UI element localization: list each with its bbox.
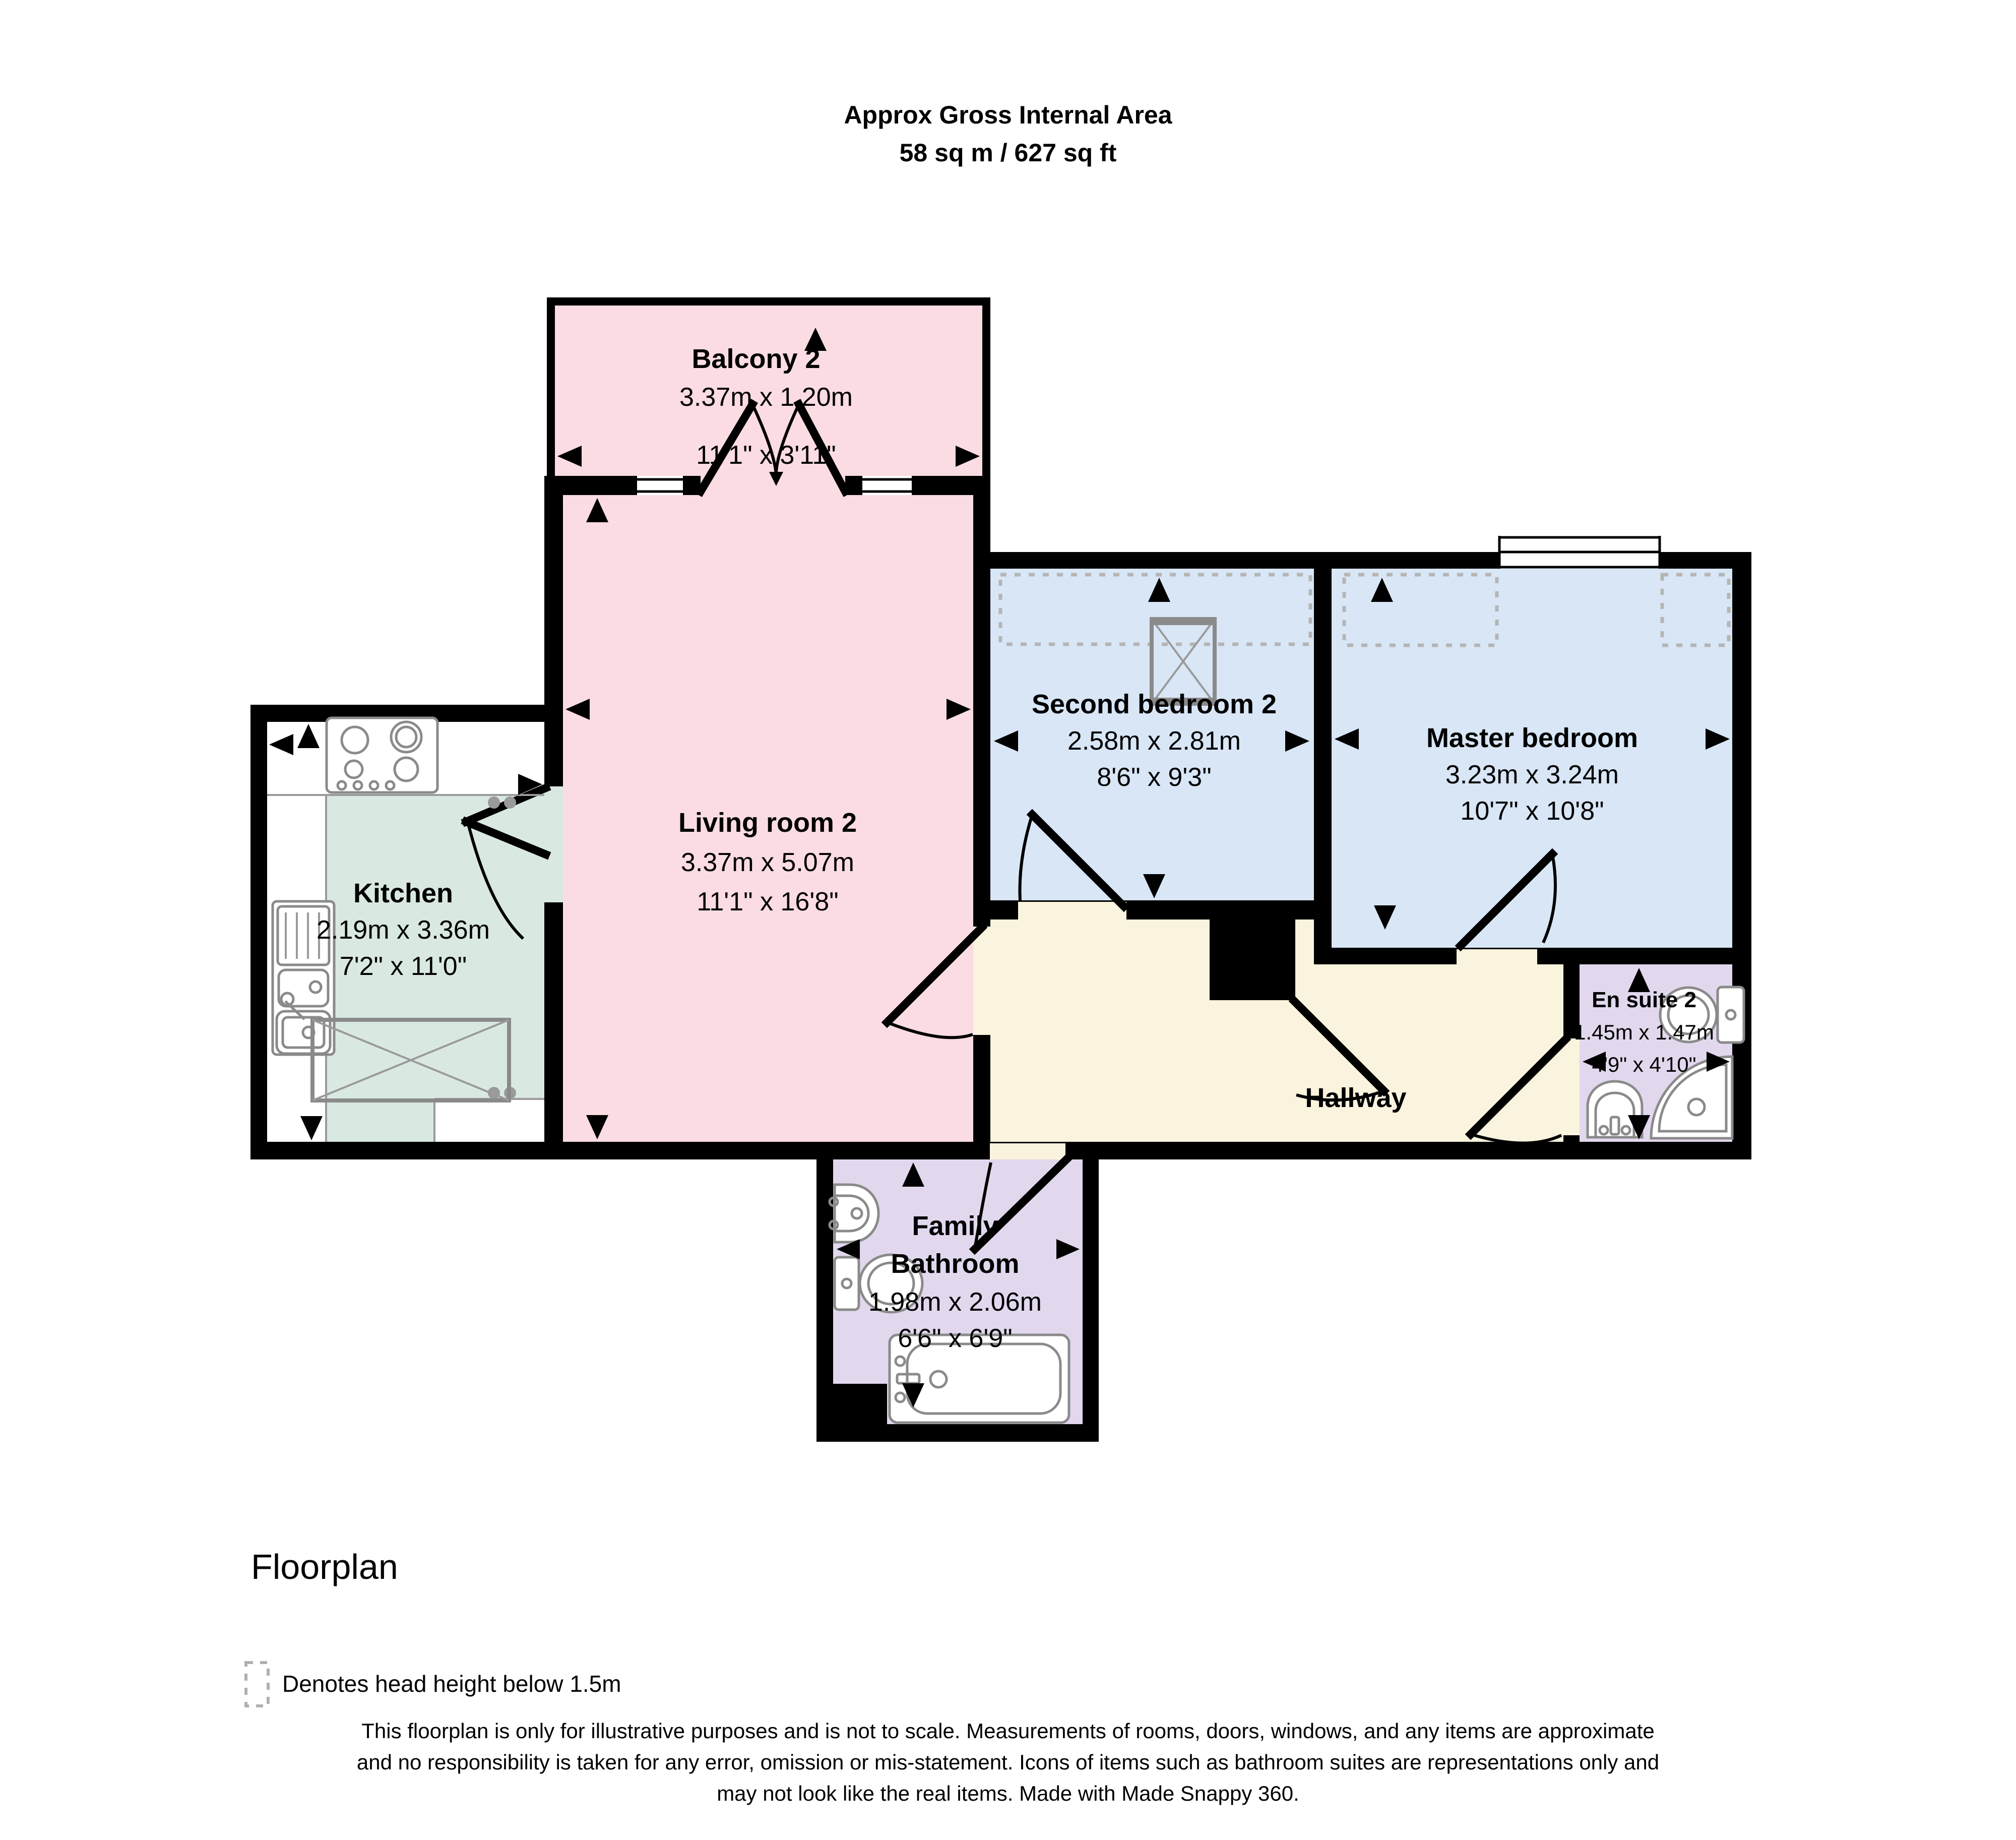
disclaimer-line-1: This floorplan is only for illustrative …: [361, 1719, 1655, 1743]
wall-joiner: [1314, 900, 1332, 964]
kitchen-door-opening: [544, 786, 563, 902]
legend-text: Denotes head height below 1.5m: [282, 1671, 621, 1697]
room-imperial: 10'7" x 10'8": [1460, 796, 1604, 826]
room-label-living: Living room 2 3.37m x 5.07m 11'1" x 16'8…: [678, 808, 857, 916]
room-name: Bathroom: [891, 1249, 1020, 1279]
wall-balcony-left: [547, 297, 555, 476]
header-title: Approx Gross Internal Area: [844, 101, 1172, 129]
room-metric: 1.98m x 2.06m: [868, 1287, 1042, 1317]
second-bedroom-door-opening: [1018, 902, 1126, 919]
room-imperial: 7'2" x 11'0": [340, 952, 467, 981]
wall-balcony-right: [982, 297, 990, 476]
toilet-cistern: [1718, 987, 1744, 1042]
room-metric: 2.58m x 2.81m: [1067, 726, 1241, 756]
room-name: Family: [912, 1211, 998, 1241]
wall-bathroom-notch: [816, 1384, 887, 1442]
header: Approx Gross Internal Area 58 sq m / 627…: [844, 101, 1172, 167]
door-stop-dot: [504, 796, 516, 809]
box-cap: [1152, 619, 1215, 625]
living-door-opening: [973, 927, 990, 1035]
room-name: Hallway: [1305, 1083, 1406, 1113]
floorplan-page: Approx Gross Internal Area 58 sq m / 627…: [0, 0, 2016, 1840]
floorplan-canvas: Approx Gross Internal Area 58 sq m / 627…: [0, 0, 2016, 1840]
room-name: En suite 2: [1592, 988, 1696, 1012]
master-bedroom-floor: [1332, 569, 1732, 948]
room-metric: 2.19m x 3.36m: [317, 915, 490, 945]
room-name: Balcony 2: [691, 344, 820, 374]
floorplan-caption: Floorplan: [251, 1547, 398, 1586]
room-metric: 3.37m x 5.07m: [681, 848, 854, 877]
room-name: Kitchen: [353, 878, 453, 908]
disclaimer-line-3: may not look like the real items. Made w…: [717, 1782, 1299, 1805]
room-imperial: 11'1" x 16'8": [697, 887, 838, 916]
en-suite-door-opening: [1563, 1038, 1580, 1135]
room-metric: 3.23m x 3.24m: [1445, 760, 1619, 789]
head-height-legend-icon: [246, 1663, 268, 1706]
header-area: 58 sq m / 627 sq ft: [900, 139, 1117, 167]
wall-living-right: [973, 476, 990, 1159]
wall-between-bedrooms: [1314, 569, 1332, 919]
room-imperial: 4'9" x 4'10": [1592, 1053, 1696, 1076]
wall-bathroom-right: [1083, 1159, 1099, 1442]
toilet-cistern: [835, 1257, 859, 1310]
disclaimer-line-2: and no responsibility is taken for any e…: [357, 1750, 1659, 1774]
room-name: Living room 2: [678, 808, 857, 838]
bathroom-door-opening: [990, 1143, 1065, 1159]
room-name: Second bedroom 2: [1032, 689, 1277, 719]
room-metric: 1.45m x 1.47m: [1574, 1020, 1714, 1044]
master-door-opening: [1457, 949, 1537, 964]
room-metric: 3.37m x 1.20m: [679, 383, 853, 412]
kitchen-counter-bottom: [434, 1099, 544, 1142]
wall-master-bottom: [1332, 948, 1751, 964]
door-stop-dot: [488, 796, 500, 809]
room-imperial: 11'1" x 3'11": [696, 441, 836, 470]
basin-icon: [835, 1185, 878, 1242]
footer: Floorplan Denotes head height below 1.5m…: [246, 1547, 1659, 1805]
wall-master-right: [1732, 552, 1751, 1159]
room-name: Master bedroom: [1426, 723, 1638, 753]
wall-balcony-top: [547, 297, 990, 305]
room-imperial: 6'6" x 6'9": [898, 1324, 1012, 1353]
wall-kitchen-left: [250, 705, 267, 1159]
room-label-hallway: Hallway: [1305, 1083, 1406, 1113]
room-imperial: 8'6" x 9'3": [1097, 763, 1211, 792]
wall-hallway-notch: [1210, 919, 1295, 1000]
room-label-en-suite: En suite 2 1.45m x 1.47m 4'9" x 4'10": [1574, 988, 1714, 1076]
